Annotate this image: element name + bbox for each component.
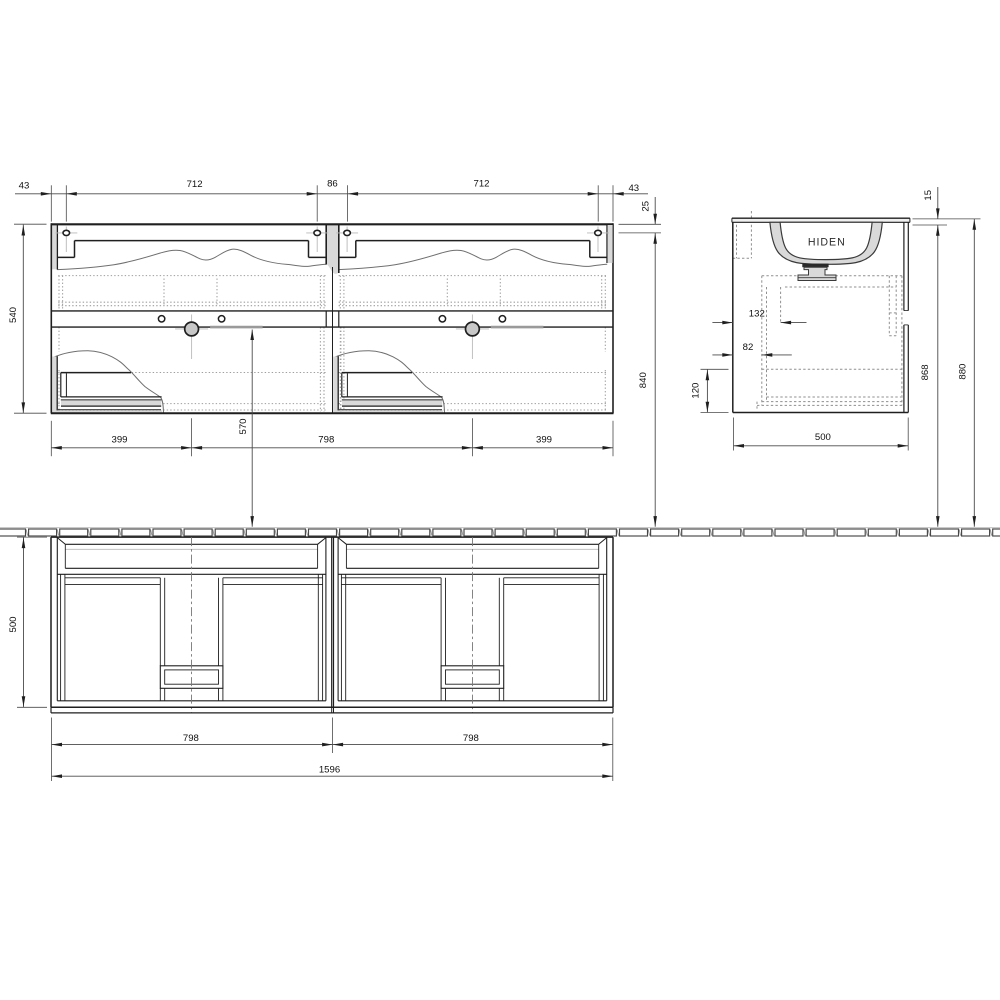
svg-text:570: 570 [238, 418, 249, 434]
svg-text:120: 120 [690, 383, 701, 399]
svg-text:399: 399 [536, 435, 552, 446]
svg-text:82: 82 [743, 342, 754, 353]
svg-text:500: 500 [8, 616, 19, 632]
svg-text:798: 798 [463, 733, 479, 744]
svg-text:HIDEN: HIDEN [808, 237, 846, 249]
svg-text:86: 86 [327, 179, 338, 190]
svg-text:43: 43 [628, 183, 639, 194]
svg-text:798: 798 [318, 435, 334, 446]
svg-text:712: 712 [187, 179, 203, 190]
svg-text:712: 712 [473, 179, 489, 190]
svg-text:500: 500 [815, 432, 831, 443]
svg-text:1596: 1596 [319, 765, 340, 776]
svg-text:880: 880 [957, 364, 968, 380]
svg-text:25: 25 [640, 201, 651, 212]
svg-text:540: 540 [8, 307, 19, 323]
svg-text:868: 868 [920, 364, 931, 380]
svg-text:43: 43 [19, 180, 30, 191]
svg-text:798: 798 [183, 733, 199, 744]
svg-text:399: 399 [111, 435, 127, 446]
svg-text:840: 840 [638, 372, 649, 388]
svg-text:15: 15 [923, 190, 934, 201]
svg-text:132: 132 [749, 309, 765, 320]
